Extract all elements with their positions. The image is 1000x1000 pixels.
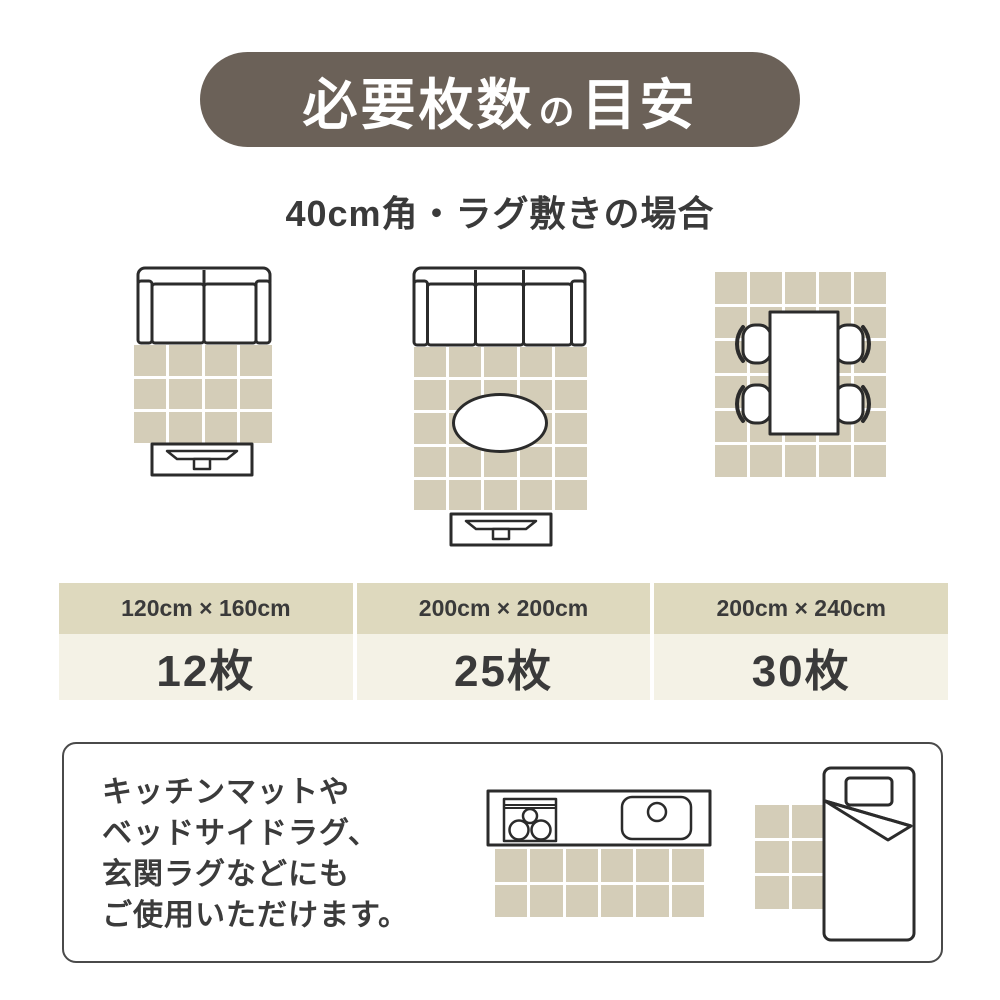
rug-tile — [495, 849, 527, 882]
dining-table-icon — [770, 312, 838, 434]
rug-tile — [240, 379, 272, 410]
oval-table-icon — [452, 393, 548, 453]
rug-tile — [750, 272, 782, 304]
chair-seat-icon — [743, 385, 771, 423]
rug-tile — [169, 412, 201, 443]
rug-tile — [520, 480, 552, 510]
rug-tile — [819, 445, 851, 477]
rug-tile — [555, 347, 587, 377]
sofa-cushion — [524, 284, 572, 345]
sofa-arm-right — [572, 281, 586, 345]
size-label: 120cm × 160cm — [59, 583, 353, 634]
chair-seat-icon — [743, 325, 771, 363]
note-line: ご使用いただけます。 — [102, 895, 409, 936]
rug-tile — [854, 272, 886, 304]
rug-tile — [134, 379, 166, 410]
size-card-2: 200cm × 200cm 25枚 — [357, 583, 651, 700]
rug-tile — [414, 413, 446, 443]
sofa-arm-right — [256, 281, 270, 343]
sofa-arm-left — [414, 281, 428, 345]
sofa-cushion — [476, 284, 524, 345]
rug-tile — [530, 885, 562, 918]
rug-tile — [414, 480, 446, 510]
rug-tile — [854, 445, 886, 477]
rug-tile — [755, 841, 789, 874]
pillow-icon — [846, 778, 892, 805]
rug-tile — [555, 380, 587, 410]
count-label: 12枚 — [59, 634, 353, 700]
rug-tile — [449, 480, 481, 510]
count-label: 25枚 — [357, 634, 651, 700]
sofa-cushion — [204, 284, 256, 343]
rug-tile — [755, 805, 789, 838]
tv-stand-icon — [449, 511, 553, 547]
rug-tile — [134, 412, 166, 443]
size-label: 200cm × 240cm — [654, 583, 948, 634]
rug-tile — [484, 480, 516, 510]
rug-tile — [414, 380, 446, 410]
rug-tile — [785, 445, 817, 477]
size-card-3: 200cm × 240cm 30枚 — [654, 583, 948, 700]
rug-tile — [566, 885, 598, 918]
banner-title-sub: 目安 — [582, 60, 698, 140]
rug-tile — [792, 841, 826, 874]
bed-icon — [822, 766, 916, 942]
rug-tile — [205, 345, 237, 376]
count-label: 30枚 — [654, 634, 948, 700]
kitchen-rug-grid — [495, 849, 704, 917]
note-line: キッチンマットや — [102, 772, 409, 813]
rug-tile — [755, 876, 789, 909]
rug-tile — [601, 849, 633, 882]
rug-tile — [555, 413, 587, 443]
page-root: 必要枚数 の 目安 40cm角・ラグ敷きの場合 — [0, 0, 1000, 1000]
sofa-cushion — [428, 284, 476, 345]
bedside-rug-grid — [755, 805, 825, 909]
subtitle: 40cm角・ラグ敷きの場合 — [0, 185, 1000, 237]
rug-tile — [555, 480, 587, 510]
rug-tile — [792, 876, 826, 909]
sofa-2seat-icon — [136, 266, 272, 346]
rug-tile — [601, 885, 633, 918]
rug-tile — [530, 849, 562, 882]
size-card-row: 120cm × 160cm 12枚 200cm × 200cm 25枚 200c… — [59, 583, 948, 700]
rug-tile — [520, 347, 552, 377]
rug-tile — [240, 345, 272, 376]
rug-tile — [240, 412, 272, 443]
rug-grid-1 — [134, 345, 272, 443]
rug-tile — [169, 379, 201, 410]
dining-set-icon — [733, 306, 873, 440]
note-line: ベッドサイドラグ、 — [102, 813, 409, 854]
faucet-icon — [648, 803, 666, 821]
banner-title: 必要枚数 の 目安 — [302, 60, 697, 140]
rug-tile — [520, 447, 552, 477]
rug-tile — [785, 272, 817, 304]
rug-tile — [205, 412, 237, 443]
rug-tile — [672, 885, 704, 918]
sofa-arm-left — [138, 281, 152, 343]
banner-title-particle: の — [534, 83, 581, 135]
rug-tile — [672, 849, 704, 882]
tv-base — [194, 459, 210, 469]
rug-tile — [819, 272, 851, 304]
rug-tile — [750, 445, 782, 477]
burner-icon — [510, 821, 529, 840]
rug-tile — [484, 347, 516, 377]
tv-base — [493, 529, 509, 539]
rug-tile — [555, 447, 587, 477]
rug-tile — [414, 347, 446, 377]
rug-tile — [134, 345, 166, 376]
rug-tile — [414, 447, 446, 477]
note-line: 玄関ラグなどにも — [102, 854, 409, 895]
rug-tile — [205, 379, 237, 410]
rug-tile — [169, 345, 201, 376]
banner-title-main: 必要枚数 — [302, 60, 534, 140]
kitchen-counter-icon — [486, 788, 712, 848]
rug-tile — [449, 447, 481, 477]
rug-tile — [792, 805, 826, 838]
sofa-cushion — [152, 284, 204, 343]
note-text: キッチンマットや ベッドサイドラグ、 玄関ラグなどにも ご使用いただけます。 — [102, 772, 409, 936]
size-card-1: 120cm × 160cm 12枚 — [59, 583, 353, 700]
rug-tile — [636, 885, 668, 918]
burner-icon — [532, 821, 551, 840]
rug-tile — [566, 849, 598, 882]
rug-tile — [636, 849, 668, 882]
rug-tile — [715, 445, 747, 477]
rug-tile — [495, 885, 527, 918]
rug-tile — [449, 347, 481, 377]
rug-tile — [715, 272, 747, 304]
burner-icon — [523, 809, 537, 823]
size-label: 200cm × 200cm — [357, 583, 651, 634]
tv-stand-icon — [150, 441, 254, 477]
sofa-3seat-icon — [412, 266, 587, 348]
title-banner: 必要枚数 の 目安 — [200, 52, 800, 147]
